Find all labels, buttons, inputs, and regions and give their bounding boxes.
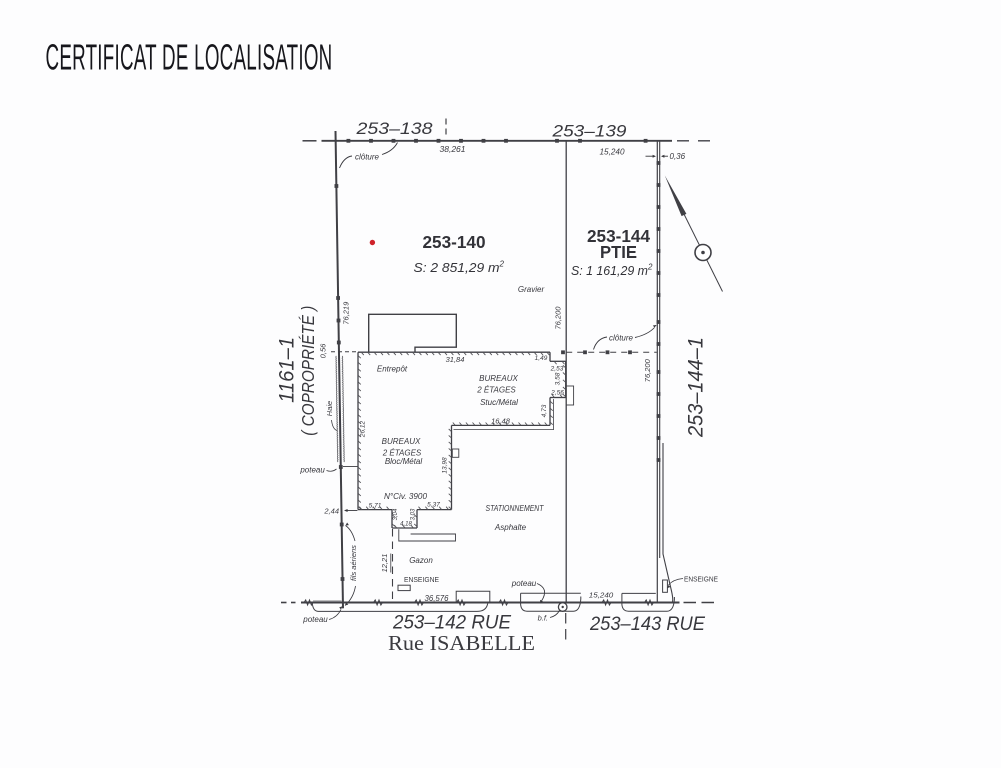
- svg-text:38,261: 38,261: [440, 145, 466, 154]
- svg-text:S: 2 851,29 m2: S: 2 851,29 m2: [414, 260, 505, 276]
- svg-text:PTIE: PTIE: [600, 242, 637, 262]
- svg-text:( COPROPRIÉTÉ ): ( COPROPRIÉTÉ ): [298, 306, 318, 436]
- svg-text:poteau: poteau: [302, 615, 328, 624]
- svg-text:253–144–1: 253–144–1: [684, 337, 707, 438]
- svg-text:fils aériens: fils aériens: [349, 545, 358, 581]
- svg-text:253–143 RUE: 253–143 RUE: [589, 614, 705, 635]
- svg-text:poteau: poteau: [299, 466, 325, 475]
- svg-text:Gravier: Gravier: [518, 285, 545, 294]
- svg-text:clôture: clôture: [355, 152, 380, 161]
- svg-text:13,98: 13,98: [442, 457, 449, 474]
- svg-text:36,576: 36,576: [425, 594, 450, 603]
- svg-text:2,56: 2,56: [550, 389, 564, 396]
- svg-text:poteau: poteau: [511, 579, 537, 588]
- svg-text:Asphalte: Asphalte: [494, 523, 527, 532]
- svg-text:3,58: 3,58: [555, 372, 562, 385]
- svg-text:2,44: 2,44: [323, 507, 339, 516]
- svg-text:3,04: 3,04: [393, 508, 399, 520]
- svg-text:CERTIFICAT DE LOCALISATION: CERTIFICAT DE LOCALISATION: [46, 37, 333, 78]
- svg-text:4,18: 4,18: [400, 522, 412, 528]
- svg-text:Bloc/Métal: Bloc/Métal: [385, 457, 423, 466]
- svg-text:Entrepôt: Entrepôt: [377, 364, 408, 373]
- svg-text:0,56: 0,56: [318, 343, 327, 358]
- svg-text:15,240: 15,240: [600, 148, 626, 157]
- svg-text:253-140: 253-140: [423, 232, 486, 252]
- svg-text:76,219: 76,219: [342, 301, 351, 325]
- svg-text:12,21: 12,21: [380, 554, 389, 573]
- svg-text:31,84: 31,84: [446, 355, 465, 364]
- svg-text:BUREAUX: BUREAUX: [382, 437, 421, 446]
- svg-text:ENSEIGNE: ENSEIGNE: [684, 575, 718, 584]
- svg-text:2,53: 2,53: [550, 366, 564, 373]
- svg-text:clôture: clôture: [609, 333, 634, 342]
- svg-text:1,49: 1,49: [535, 355, 548, 362]
- svg-text:Haie: Haie: [325, 401, 334, 416]
- svg-text:0,36: 0,36: [670, 152, 686, 161]
- svg-text:3,03: 3,03: [411, 508, 417, 520]
- svg-text:253–138: 253–138: [355, 120, 433, 138]
- svg-text:N°Civ. 3900: N°Civ. 3900: [384, 492, 428, 501]
- svg-text:Stuc/Métal: Stuc/Métal: [480, 398, 518, 407]
- svg-text:b.f.: b.f.: [538, 614, 548, 623]
- svg-text:2 ÉTAGES: 2 ÉTAGES: [476, 386, 516, 395]
- svg-text:1161–1: 1161–1: [276, 337, 299, 403]
- svg-text:BUREAUX: BUREAUX: [479, 374, 518, 383]
- svg-text:26,12: 26,12: [360, 420, 367, 438]
- svg-text:5,71: 5,71: [369, 503, 382, 510]
- svg-text:15,240: 15,240: [589, 590, 614, 599]
- svg-text:STATIONNEMENT: STATIONNEMENT: [486, 504, 545, 513]
- svg-text:16,48: 16,48: [491, 417, 511, 426]
- svg-text:76,200: 76,200: [554, 306, 563, 330]
- svg-text:S: 1 161,29 m2: S: 1 161,29 m2: [571, 262, 653, 278]
- svg-text:253–139: 253–139: [551, 122, 626, 140]
- svg-text:4,73: 4,73: [541, 404, 548, 417]
- svg-text:Gazon: Gazon: [409, 556, 433, 565]
- svg-text:76,200: 76,200: [643, 358, 652, 382]
- svg-text:Rue ISABELLE: Rue ISABELLE: [388, 631, 535, 655]
- svg-text:5,37: 5,37: [427, 502, 440, 509]
- svg-text:ENSEIGNE: ENSEIGNE: [404, 575, 439, 584]
